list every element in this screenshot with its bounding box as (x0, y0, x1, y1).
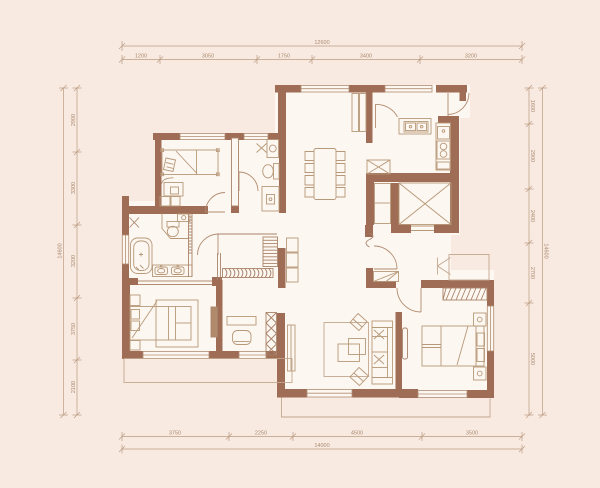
svg-text:3500: 3500 (466, 431, 478, 437)
svg-text:2250: 2250 (255, 431, 267, 437)
svg-text:2100: 2100 (71, 381, 77, 393)
svg-text:2400: 2400 (529, 210, 535, 222)
svg-text:3400: 3400 (360, 54, 372, 60)
svg-text:2900: 2900 (71, 114, 77, 126)
svg-text:3200: 3200 (71, 255, 77, 267)
svg-text:3200: 3200 (465, 54, 477, 60)
svg-text:14600: 14600 (543, 243, 549, 258)
svg-text:3750: 3750 (71, 323, 77, 335)
svg-text:1600: 1600 (529, 100, 535, 112)
svg-text:3050: 3050 (202, 54, 214, 60)
svg-text:14600: 14600 (58, 243, 64, 258)
svg-text:14000: 14000 (314, 443, 329, 449)
svg-text:1750: 1750 (278, 54, 290, 60)
svg-text:2900: 2900 (529, 150, 535, 162)
svg-text:1200: 1200 (135, 54, 147, 60)
svg-text:3750: 3750 (169, 431, 181, 437)
svg-text:4500: 4500 (351, 431, 363, 437)
svg-text:12600: 12600 (314, 40, 329, 46)
svg-text:3300: 3300 (71, 182, 77, 194)
svg-text:2700: 2700 (529, 267, 535, 279)
svg-text:5000: 5000 (529, 353, 535, 365)
